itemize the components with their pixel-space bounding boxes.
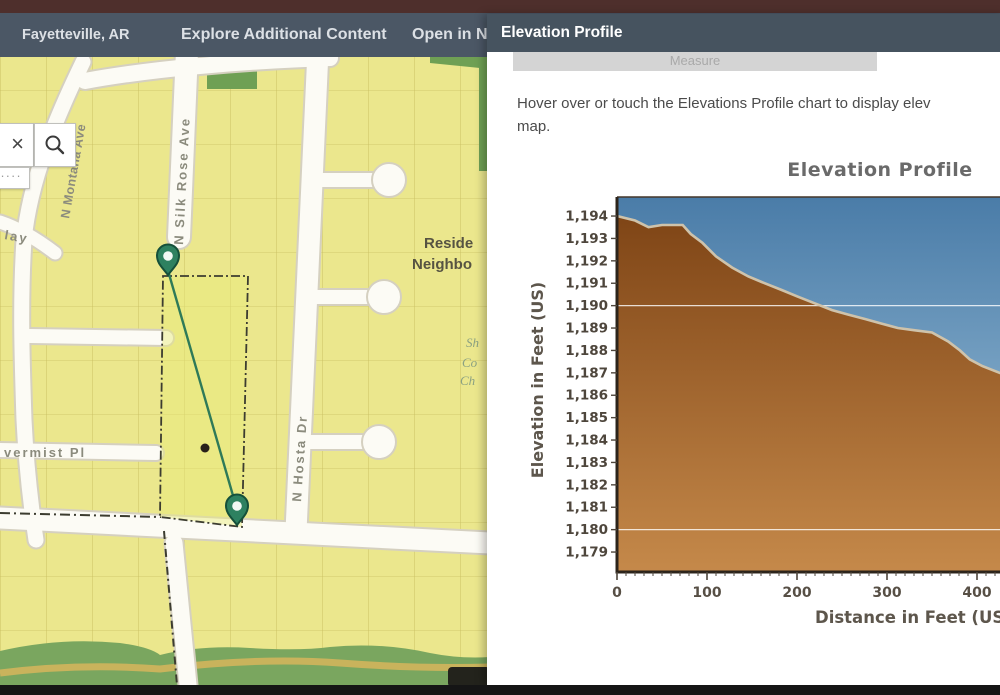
close-icon[interactable]: ×: [11, 131, 24, 157]
chart-plot-area: 1,1791,1801,1811,1821,1831,1841,1851,186…: [565, 197, 1000, 601]
svg-text:1,183: 1,183: [565, 455, 608, 471]
map-attribution-widget[interactable]: [448, 667, 490, 685]
svg-text:400: 400: [962, 585, 991, 601]
svg-text:1,194: 1,194: [565, 209, 608, 225]
street-label-vermist: vermist Pl: [4, 445, 86, 460]
area-label-church-2: Co: [462, 355, 478, 370]
svg-text:1,191: 1,191: [565, 276, 608, 292]
svg-text:100: 100: [692, 585, 721, 601]
panel-header: Elevation Profile: [487, 14, 1000, 52]
svg-text:1,179: 1,179: [565, 545, 608, 561]
area-label-church-1: Sh: [466, 335, 479, 350]
svg-text:1,184: 1,184: [565, 433, 608, 449]
svg-text:1,187: 1,187: [565, 365, 608, 381]
street-label-lay: lay: [3, 227, 29, 246]
panel-title: Elevation Profile: [501, 14, 1000, 52]
svg-text:1,190: 1,190: [565, 298, 608, 314]
map-canvas[interactable]: N Montana Ave N Silk Rose Ave N Hosta Dr…: [0, 57, 490, 685]
taskbar: [0, 685, 1000, 695]
svg-text:0: 0: [612, 585, 622, 601]
search-suggestion-handle[interactable]: ····: [0, 167, 30, 189]
svg-text:200: 200: [782, 585, 811, 601]
search-button[interactable]: [34, 123, 76, 167]
panel-note-line-1: Hover over or touch the Elevations Profi…: [517, 92, 1000, 115]
svg-text:1,189: 1,189: [565, 321, 608, 337]
elevation-chart[interactable]: 1,1791,1801,1811,1821,1831,1841,1851,186…: [505, 194, 1000, 624]
search-icon: [44, 134, 66, 156]
area-label-residential-2: Neighbo: [412, 256, 472, 273]
svg-text:1,186: 1,186: [565, 388, 608, 404]
svg-text:1,193: 1,193: [565, 231, 608, 247]
cul-de-sacs: [362, 163, 406, 459]
chart-title: Elevation Profile: [730, 159, 1000, 181]
search-input[interactable]: ×: [0, 123, 34, 167]
svg-text:1,185: 1,185: [565, 410, 608, 426]
selected-parcel: [160, 276, 248, 527]
menu-explore-additional-content[interactable]: Explore Additional Content: [181, 13, 387, 57]
svg-text:1,181: 1,181: [565, 500, 608, 516]
measure-start-pin[interactable]: [157, 245, 179, 276]
area-label-church-3: Ch: [460, 373, 475, 388]
chart-x-axis-label: Distance in Feet (US): [815, 608, 1000, 627]
svg-text:1,180: 1,180: [565, 522, 608, 538]
tab-measure[interactable]: Measure: [513, 52, 877, 71]
menu-open-in[interactable]: Open in N: [412, 13, 488, 57]
browser-top-bar: [0, 0, 1000, 13]
panel-note-line-2: map.: [517, 115, 1000, 138]
menu-location[interactable]: Fayetteville, AR: [22, 13, 129, 57]
svg-text:1,188: 1,188: [565, 343, 608, 359]
panel-note: Hover over or touch the Elevations Profi…: [517, 92, 1000, 139]
area-label-residential-1: Reside: [424, 235, 473, 252]
map-point-dot: [201, 444, 210, 453]
svg-text:1,182: 1,182: [565, 477, 608, 493]
svg-text:1,192: 1,192: [565, 253, 608, 269]
elevation-profile-panel: Elevation Profile Measure Hover over or …: [487, 14, 1000, 685]
svg-text:300: 300: [872, 585, 901, 601]
app-screen: Fayetteville, AR Explore Additional Cont…: [0, 0, 1000, 695]
